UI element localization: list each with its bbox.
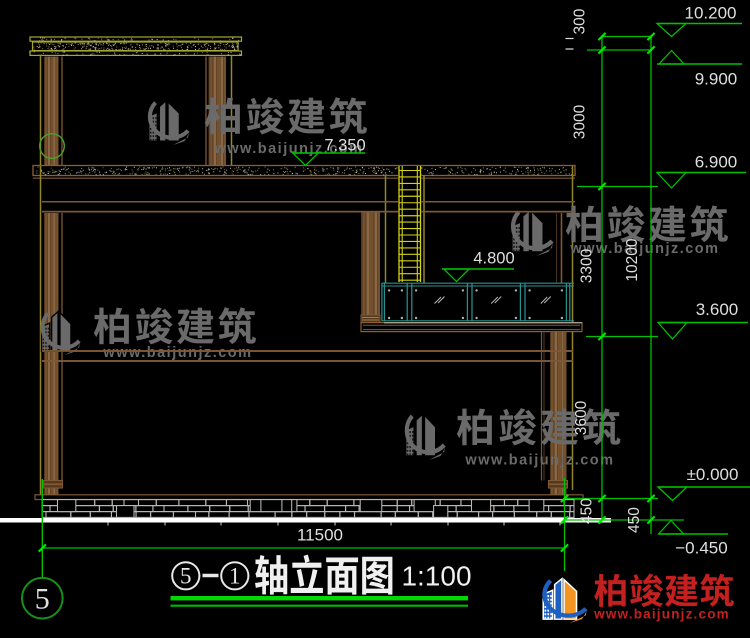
svg-text:11500: 11500 — [297, 526, 343, 545]
svg-text:6.900: 6.900 — [695, 153, 738, 172]
svg-text:7.350: 7.350 — [324, 137, 365, 155]
svg-text:5: 5 — [180, 564, 192, 589]
svg-text:5: 5 — [35, 583, 50, 616]
svg-text:3300: 3300 — [579, 248, 596, 283]
svg-text:3600: 3600 — [573, 400, 590, 435]
svg-text:4.800: 4.800 — [473, 250, 514, 268]
svg-text:www.baijunjz.com: www.baijunjz.com — [593, 607, 730, 622]
svg-text:www.baijunjz.com: www.baijunjz.com — [102, 345, 252, 361]
svg-text:9.900: 9.900 — [695, 70, 738, 89]
svg-text:www.baijunjz.com: www.baijunjz.com — [464, 453, 614, 469]
svg-text:300: 300 — [572, 8, 589, 34]
svg-text:450: 450 — [626, 507, 643, 533]
svg-text:1: 1 — [229, 564, 241, 589]
svg-text:−0.450: −0.450 — [675, 539, 727, 558]
svg-text:3.600: 3.600 — [696, 300, 739, 319]
svg-text:1:100: 1:100 — [401, 561, 471, 592]
svg-text:10200: 10200 — [624, 238, 641, 281]
svg-text:±0.000: ±0.000 — [687, 465, 739, 484]
svg-text:3000: 3000 — [572, 104, 589, 139]
svg-text:450: 450 — [579, 498, 596, 524]
svg-text:10.200: 10.200 — [685, 4, 737, 23]
